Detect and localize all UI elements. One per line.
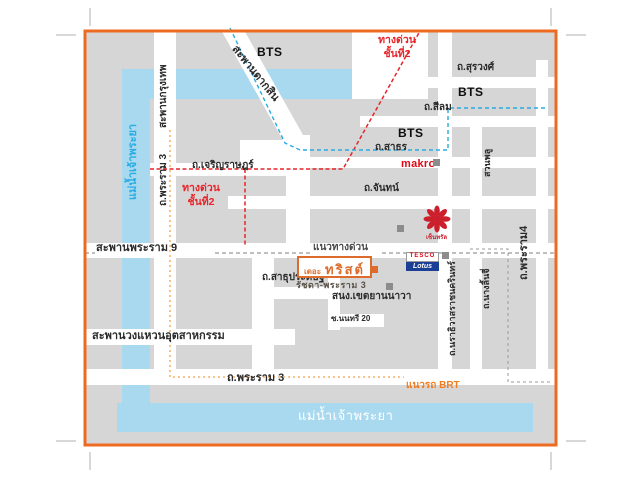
road-label-chan: ถ.จันทน์ — [364, 184, 399, 194]
project-marker — [371, 266, 378, 273]
road-label-rama3-west: ถ.พระราม 3 — [159, 154, 169, 206]
project-box: เดอะ ทริสต์ — [297, 256, 372, 278]
tesco-marker — [442, 252, 449, 259]
brt-line-label: แนวรถ BRT — [406, 381, 460, 391]
project-name: ทริสต์ — [325, 259, 365, 280]
road-rama4 — [536, 60, 548, 369]
tesco-lotus-logo: TESCO Lotus — [406, 252, 439, 271]
road-label-nang-linchi: ถ.นางลิ้นจี่ — [482, 269, 491, 310]
makro-label: makro — [401, 158, 436, 170]
road-silom — [360, 116, 556, 127]
central-logo-icon — [424, 206, 451, 233]
bridge-label-krung-thep: สะพานกรุงเทพ — [159, 65, 169, 128]
road-label-rama4: ถ.พระราม4 — [519, 226, 530, 280]
road-label-sathorn: ถ.สาธร — [375, 143, 407, 153]
expressway-label-top: ทางด่วน ชั้นที่2 — [368, 33, 426, 61]
road-nang-linchi — [470, 127, 482, 369]
expressway-line-label: แนวทางด่วน — [313, 243, 368, 253]
road-label-rama3-south: ถ.พระราม 3 — [227, 373, 284, 384]
road-label-charoen-rat: ถ.เจริญราษฎร์ — [192, 161, 254, 171]
district-office-label: สนง.เขตยานนาวา — [332, 292, 411, 302]
map-page: BTS BTS BTS ทางด่วน ชั้นที่2 ทางด่วน ชั้… — [0, 0, 640, 480]
road-label-soi-nonsi: ซ.นนทรี 20 — [331, 315, 370, 323]
lotus-label: Lotus — [406, 262, 439, 271]
bts-label-surawong: BTS — [458, 86, 484, 98]
tesco-label: TESCO — [406, 252, 439, 262]
road-label-suan-phlu: สวนพลู — [483, 149, 492, 177]
road-rama3-south — [85, 369, 556, 385]
expressway-label-mid: ทางด่วน ชั้นที่2 — [178, 181, 224, 209]
makro-marker — [433, 159, 440, 166]
central-marker — [397, 225, 404, 232]
road-label-surawong: ถ.สุรวงศ์ — [457, 63, 494, 73]
road-chan — [228, 196, 556, 209]
project-name-prefix: เดอะ — [304, 265, 321, 278]
district-office-marker — [386, 283, 393, 290]
bts-label-taksin: BTS — [257, 46, 283, 58]
project-subtitle: รัชดา-พระราม 3 — [296, 278, 366, 292]
bts-label-sathorn: BTS — [398, 127, 424, 139]
road-label-silom: ถ.สีลม — [424, 103, 452, 113]
river-label-bottom: แม่น้ำเจ้าพระยา — [298, 409, 393, 422]
bridge-label-rama9: สะพานพระราม 9 — [96, 243, 177, 254]
bridge-label-industrial-ring: สะพานวงแหวนอุตสาหกรรม — [92, 331, 225, 342]
central-label: เซ็นทรัล — [426, 232, 447, 242]
river-label-left: แม่น้ำเจ้าพระยา — [128, 124, 139, 200]
road-label-narathiwas: ถ.นราธิวาสราชนครินทร์ — [448, 261, 457, 356]
